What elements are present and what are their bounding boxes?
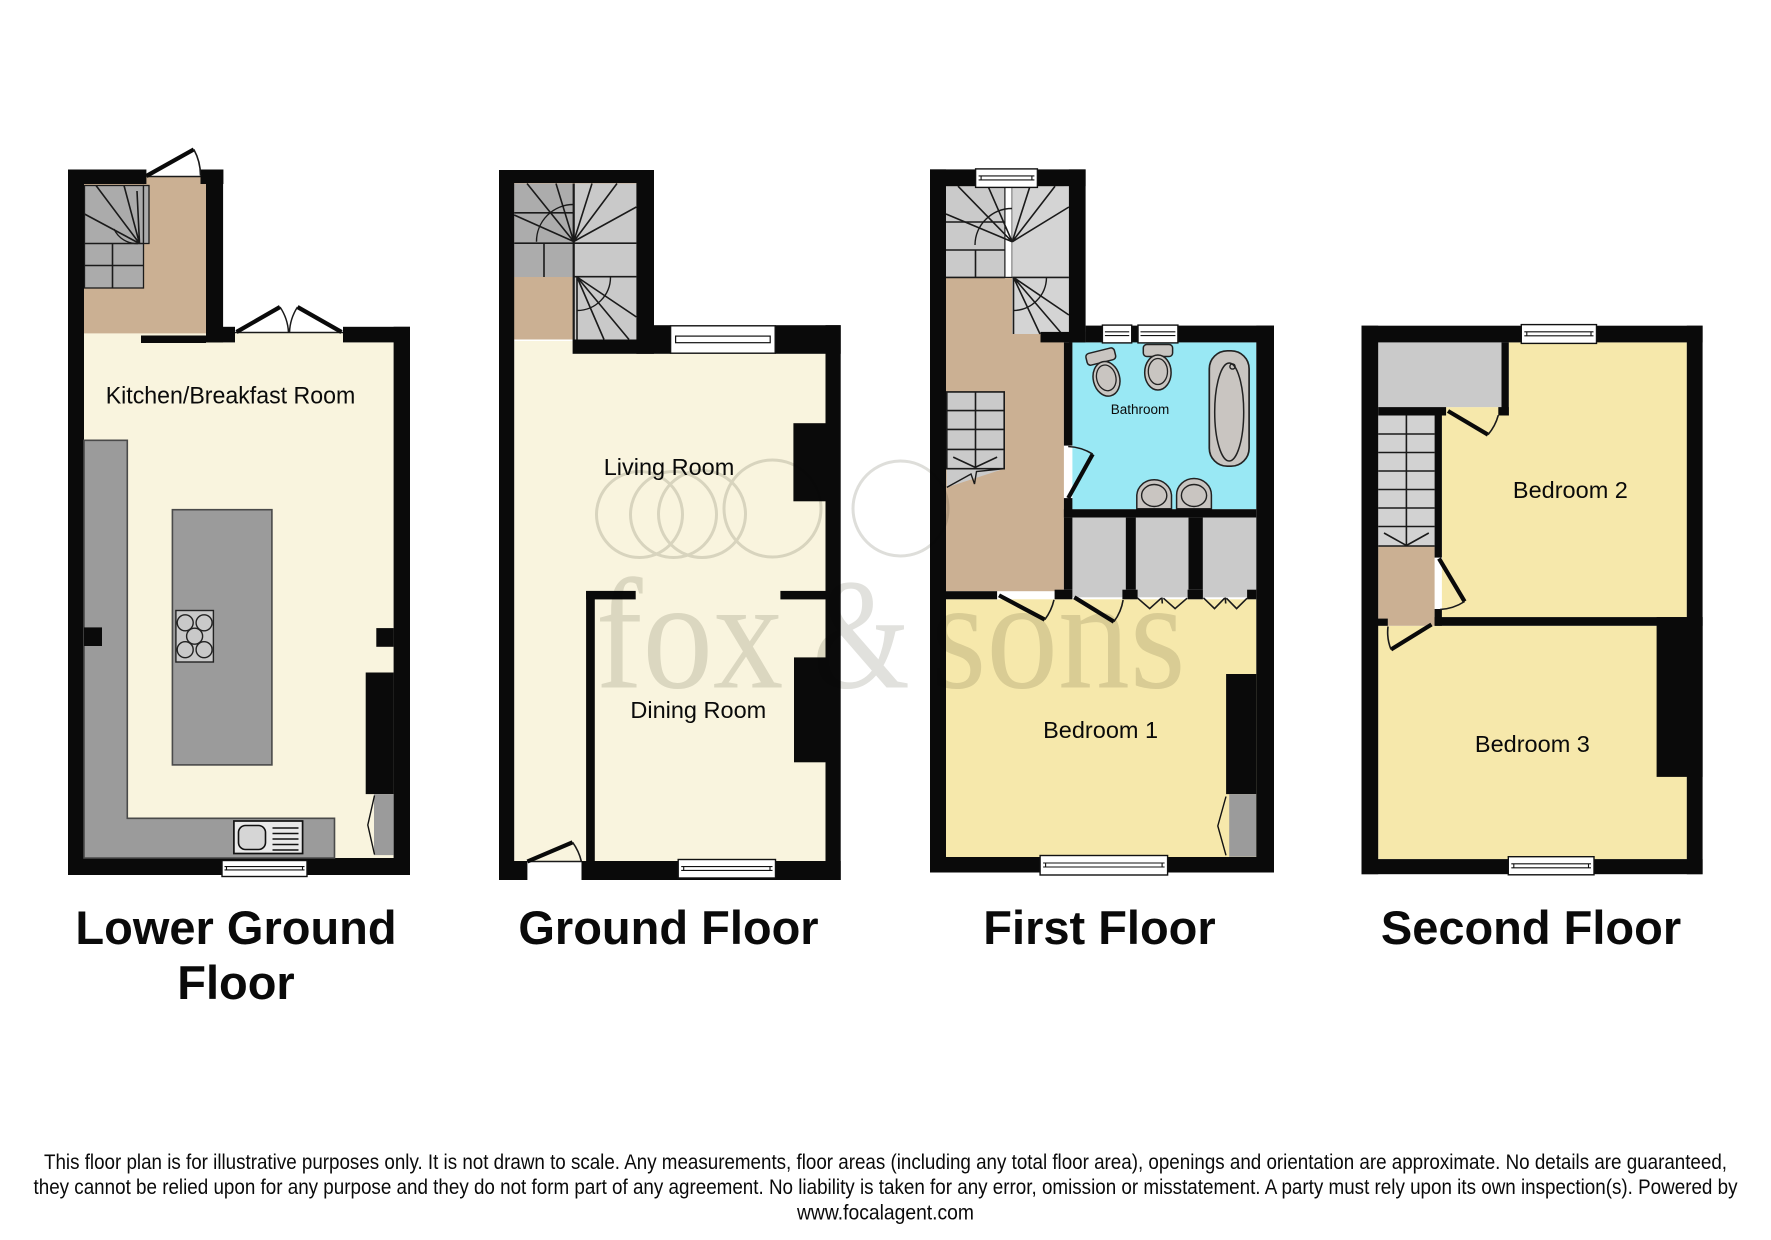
svg-text:sons: sons bbox=[931, 547, 1186, 722]
svg-text:Kitchen/Breakfast Room: Kitchen/Breakfast Room bbox=[106, 383, 356, 410]
svg-text:This floor plan is for illustr: This floor plan is for illustrative purp… bbox=[44, 1150, 1727, 1174]
svg-text:Lower Ground: Lower Ground bbox=[75, 901, 396, 954]
svg-text:&: & bbox=[812, 547, 909, 722]
svg-text:www.focalagent.com: www.focalagent.com bbox=[796, 1200, 974, 1224]
svg-text:Ground Floor: Ground Floor bbox=[518, 901, 818, 954]
svg-text:Second Floor: Second Floor bbox=[1381, 901, 1681, 954]
svg-text:they cannot be relied upon for: they cannot be relied upon for any purpo… bbox=[34, 1175, 1738, 1199]
svg-text:First Floor: First Floor bbox=[983, 901, 1215, 954]
svg-text:Bedroom 3: Bedroom 3 bbox=[1475, 731, 1590, 757]
svg-text:Bedroom 2: Bedroom 2 bbox=[1513, 477, 1628, 503]
svg-text:fox: fox bbox=[596, 548, 784, 722]
svg-text:Bathroom: Bathroom bbox=[1111, 402, 1170, 417]
svg-text:Floor: Floor bbox=[177, 956, 294, 1009]
